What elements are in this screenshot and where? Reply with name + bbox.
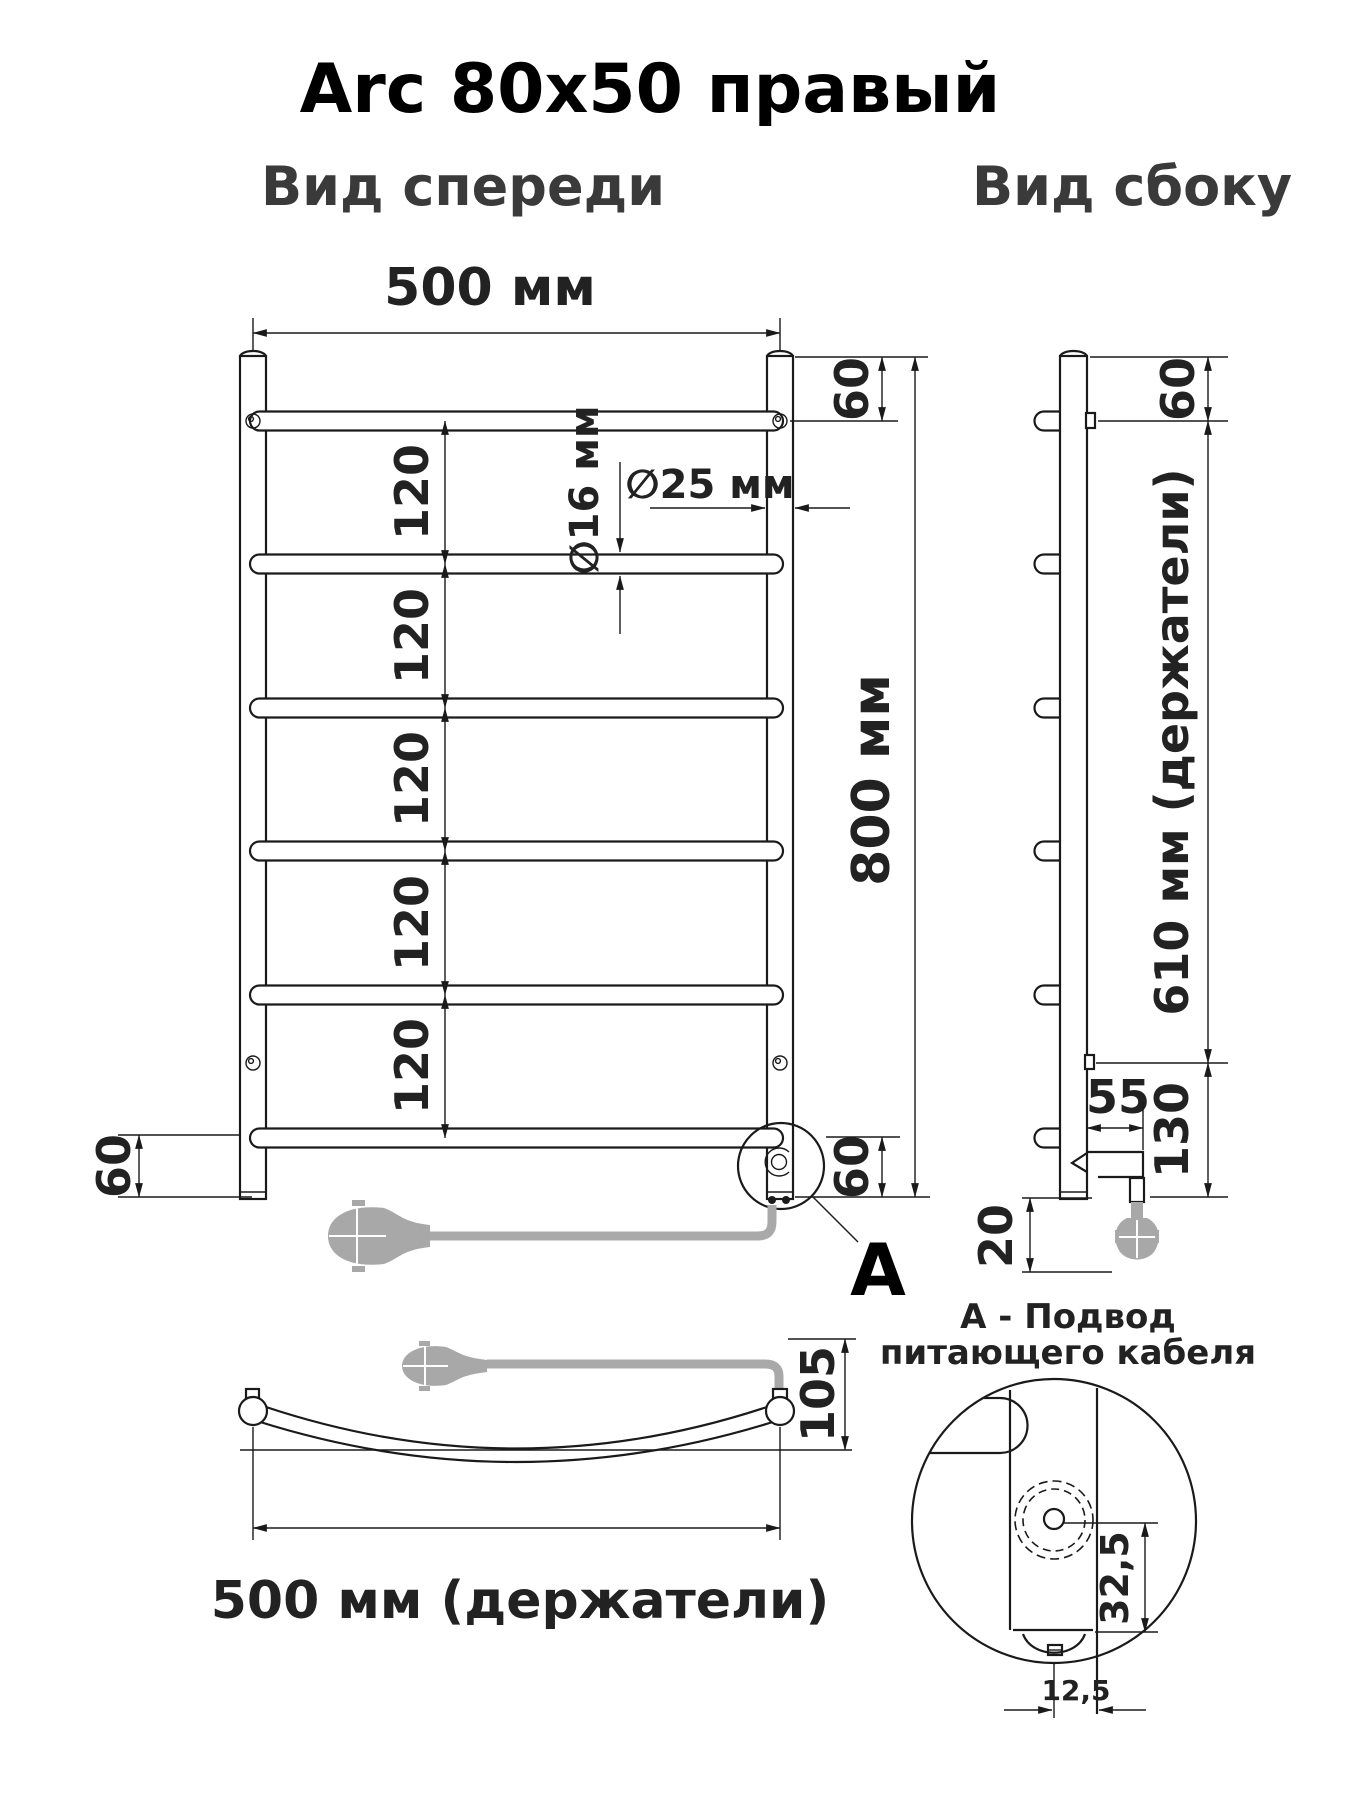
gap-dim-5: 120 (385, 1018, 439, 1114)
front-bottom-left-dim: 60 (87, 1134, 252, 1198)
post-dia-dim: ∅25 мм (625, 462, 850, 508)
cable-note-line2: питающего кабеля (880, 1333, 1256, 1373)
rungs (250, 412, 783, 1148)
side-dims: 60 610 мм (держатели) 130 55 20 (969, 357, 1228, 1272)
svg-text:105: 105 (791, 1346, 845, 1442)
side-view-label: Вид сбоку (972, 155, 1292, 218)
post-section-right (766, 1397, 794, 1425)
cable-note-line1: А - Подвод (960, 1297, 1176, 1337)
drawing-page: Arc 80x50 правый Вид спереди Вид сбоку 5… (0, 0, 1350, 1800)
top-view: 105 500 мм (держатели) (211, 1339, 856, 1631)
wall-bracket-bottom (1085, 1055, 1094, 1069)
gap-dim-4: 120 (385, 875, 439, 971)
svg-text:∅25 мм: ∅25 мм (625, 462, 794, 508)
technical-drawing: Arc 80x50 правый Вид спереди Вид сбоку 5… (0, 0, 1350, 1800)
gap-dim-3: 120 (385, 731, 439, 827)
front-height-dim: 800 мм (842, 674, 902, 886)
side-bottom-dim: 130 (1145, 1082, 1199, 1178)
gap-dim-1: 120 (385, 444, 439, 540)
side-power-plug-icon (1115, 1178, 1159, 1260)
screw-icons (246, 414, 787, 1070)
gland-boss-outer (1015, 1481, 1093, 1559)
front-height-dims: 60 800 мм 60 (790, 357, 930, 1199)
power-plug-icon (328, 1200, 772, 1272)
gap-dim-2: 120 (385, 588, 439, 684)
top-power-plug-icon (402, 1341, 779, 1391)
front-view: 500 мм (87, 258, 930, 1312)
svg-text:32,5: 32,5 (1093, 1531, 1137, 1625)
side-rung-stubs (1035, 412, 1063, 1148)
wall-bracket-top (1086, 413, 1095, 428)
gland-hole (1044, 1509, 1064, 1529)
front-top-offset: 60 (825, 357, 879, 421)
side-holders-dim: 610 мм (держатели) (1145, 468, 1199, 1015)
holders-width-dim: 500 мм (держатели) (211, 1427, 830, 1631)
rung-dia-dim: ∅16 мм (562, 405, 620, 634)
gland-boss-inner (1023, 1489, 1085, 1551)
svg-text:12,5: 12,5 (1041, 1674, 1110, 1707)
side-cable-dim: 55 (1086, 1070, 1150, 1124)
front-bottom-right-offset: 60 (825, 1135, 879, 1199)
detail-view: 32,5 12,5 (912, 1379, 1196, 1718)
depth-dim: 105 (788, 1339, 856, 1450)
page-title: Arc 80x50 правый (300, 50, 1001, 129)
svg-text:60: 60 (87, 1134, 141, 1198)
front-width-dim: 500 мм (384, 258, 596, 318)
post-section-left (239, 1397, 267, 1425)
side-post (1060, 356, 1087, 1199)
left-post (240, 356, 266, 1199)
callout-label: А (850, 1228, 906, 1312)
front-view-label: Вид спереди (261, 155, 665, 218)
side-drop-dim: 20 (969, 1204, 1023, 1268)
side-top-offset: 60 (1151, 357, 1205, 421)
detail-boundary-circle (912, 1379, 1196, 1663)
svg-text:∅16 мм: ∅16 мм (562, 405, 608, 574)
side-view: 60 610 мм (держатели) 130 55 20 А - Подв… (880, 351, 1256, 1373)
detail-h-dim: 12,5 (1004, 1662, 1146, 1718)
svg-text:500 мм (держатели): 500 мм (держатели) (211, 1571, 830, 1631)
rung-gap-dims: 120 120 120 120 120 (385, 421, 445, 1138)
